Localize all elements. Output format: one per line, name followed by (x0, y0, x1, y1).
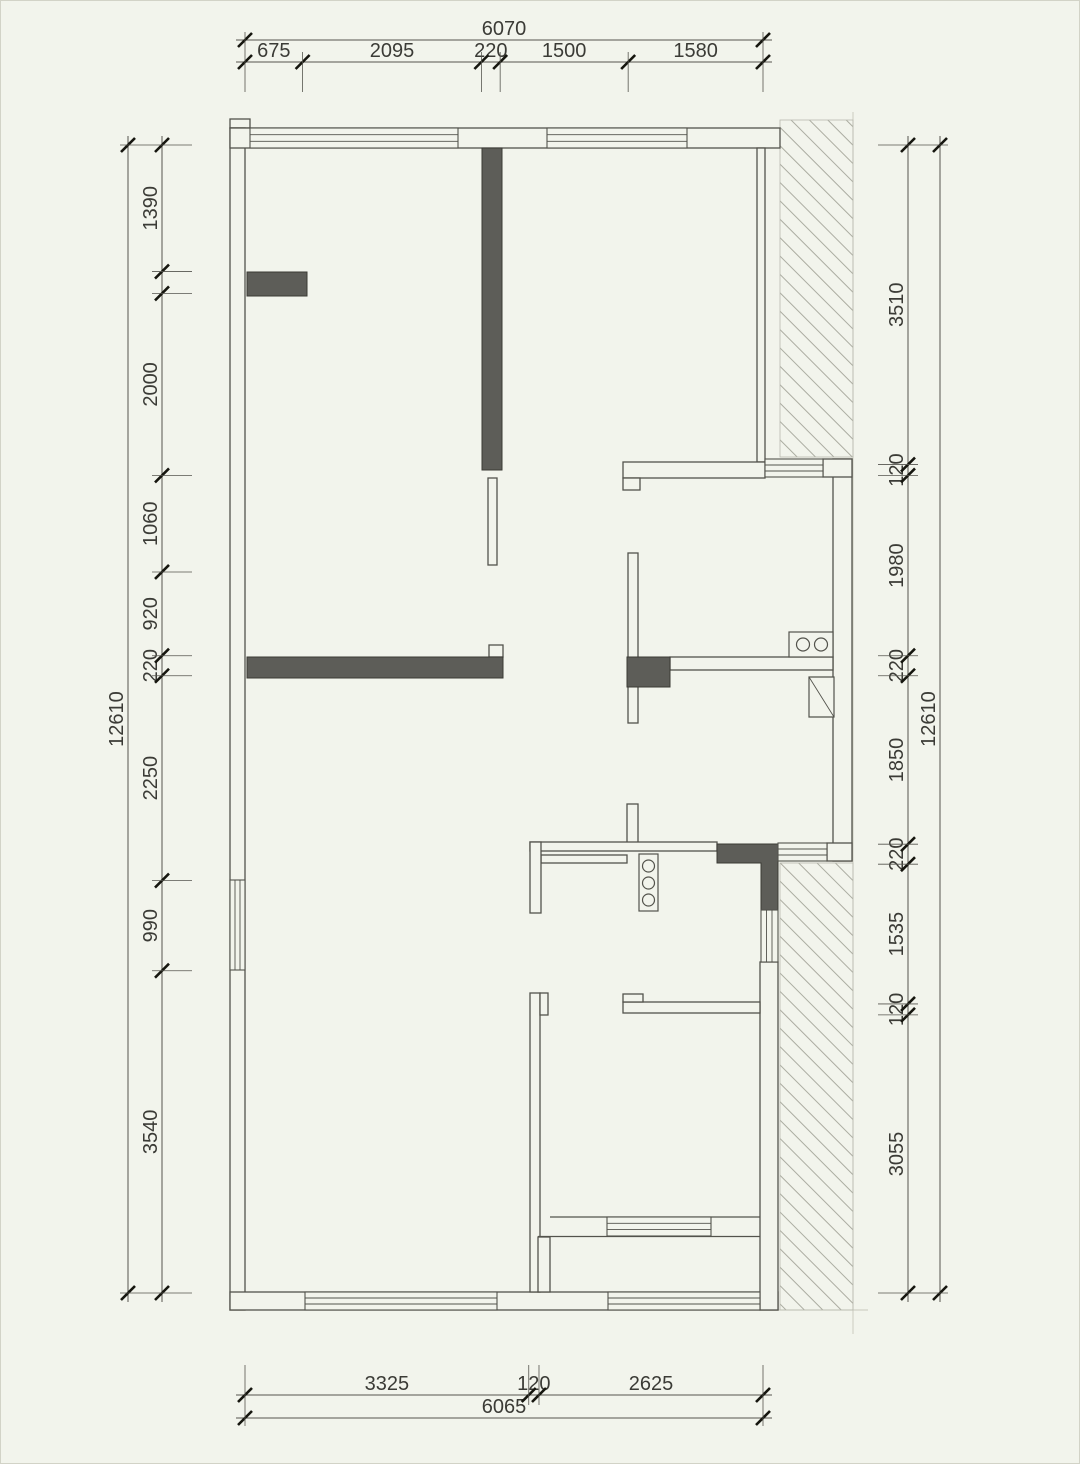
dim-label: 3510 (886, 283, 908, 328)
dim-label: 1535 (886, 912, 908, 957)
dim-label: 1580 (673, 40, 718, 62)
wall-bedroom-divider-notch (540, 993, 548, 1015)
hatch-upper (780, 120, 853, 457)
dark-wall-middle (247, 657, 503, 678)
wall-bedroom-top (623, 1002, 760, 1013)
wall-right-upper (757, 148, 765, 462)
dim-label: 12610 (106, 691, 128, 747)
window-bath-right-v (761, 910, 778, 962)
wall-small-box (489, 645, 503, 657)
dim-label: 1980 (886, 543, 908, 588)
wall-pier-bath-right (827, 843, 852, 861)
dim-label: 6070 (482, 18, 527, 40)
wall-kitchen-divider (628, 553, 638, 723)
windows (230, 128, 827, 1310)
wall-bath-second (541, 855, 627, 863)
window-left (230, 880, 245, 970)
wall-bath-divider (627, 804, 638, 843)
dim-label: 3540 (140, 1110, 162, 1155)
window-kitchen-right (765, 459, 823, 477)
dim-label: 120 (886, 993, 908, 1026)
wall-bedroom-top-notch (623, 994, 643, 1002)
dark-wall-bath-L (717, 844, 778, 910)
wall-room-tr-bottom (623, 462, 765, 478)
dim-label: 920 (140, 597, 162, 630)
hatched-void (778, 112, 868, 1334)
wall-left (230, 128, 245, 1310)
wall-room-tr-notch (623, 478, 640, 490)
window-top-a (250, 128, 458, 148)
door-leaf-icon (809, 677, 834, 717)
window-top-b (547, 128, 687, 148)
dark-wall-kitchen-block (627, 657, 670, 687)
hatch-lower (780, 863, 853, 1310)
dark-walls (247, 148, 778, 910)
wall-thin-center (488, 478, 497, 565)
dim-label: 12610 (918, 691, 940, 747)
dim-label: 1390 (140, 186, 162, 231)
wall-pier-kitchen-right (823, 459, 852, 477)
wall-right-lower (760, 962, 778, 1310)
wall-right-kitchen (833, 459, 852, 861)
wall-closet-left (538, 1237, 550, 1292)
wall-bath-left (530, 842, 541, 913)
window-bottom-a (305, 1292, 497, 1310)
basin-column-icon (639, 854, 658, 911)
dim-label: 3325 (365, 1373, 410, 1395)
dim-label: 2095 (370, 40, 415, 62)
window-bath-right-h (778, 843, 827, 861)
dark-wall-left-stub (247, 272, 307, 296)
window-bottom-b (608, 1292, 760, 1310)
dim-label: 1060 (140, 501, 162, 546)
outer-walls (230, 119, 852, 1310)
floor-plan-svg: 6070675209522015001580606533251202625126… (0, 0, 1080, 1464)
dim-label: 6065 (482, 1396, 527, 1418)
dim-label: 675 (257, 40, 290, 62)
dim-label: 990 (140, 909, 162, 942)
wall-bath-top (530, 842, 717, 851)
dark-wall-vertical (482, 148, 502, 470)
dim-label: 3055 (886, 1132, 908, 1177)
cooktop-2-burner-icon (789, 632, 833, 657)
dim-label: 2250 (140, 756, 162, 801)
dim-label: 1850 (886, 738, 908, 783)
blueprint-canvas: 6070675209522015001580606533251202625126… (0, 0, 1080, 1464)
dim-label: 2625 (629, 1373, 674, 1395)
wall-kitchen-counter (670, 657, 833, 670)
dim-label: 120 (886, 453, 908, 486)
dim-label: 1500 (542, 40, 587, 62)
window-closet (607, 1217, 711, 1236)
wall-top-left-stub (230, 119, 250, 128)
dim-label: 2000 (140, 362, 162, 407)
